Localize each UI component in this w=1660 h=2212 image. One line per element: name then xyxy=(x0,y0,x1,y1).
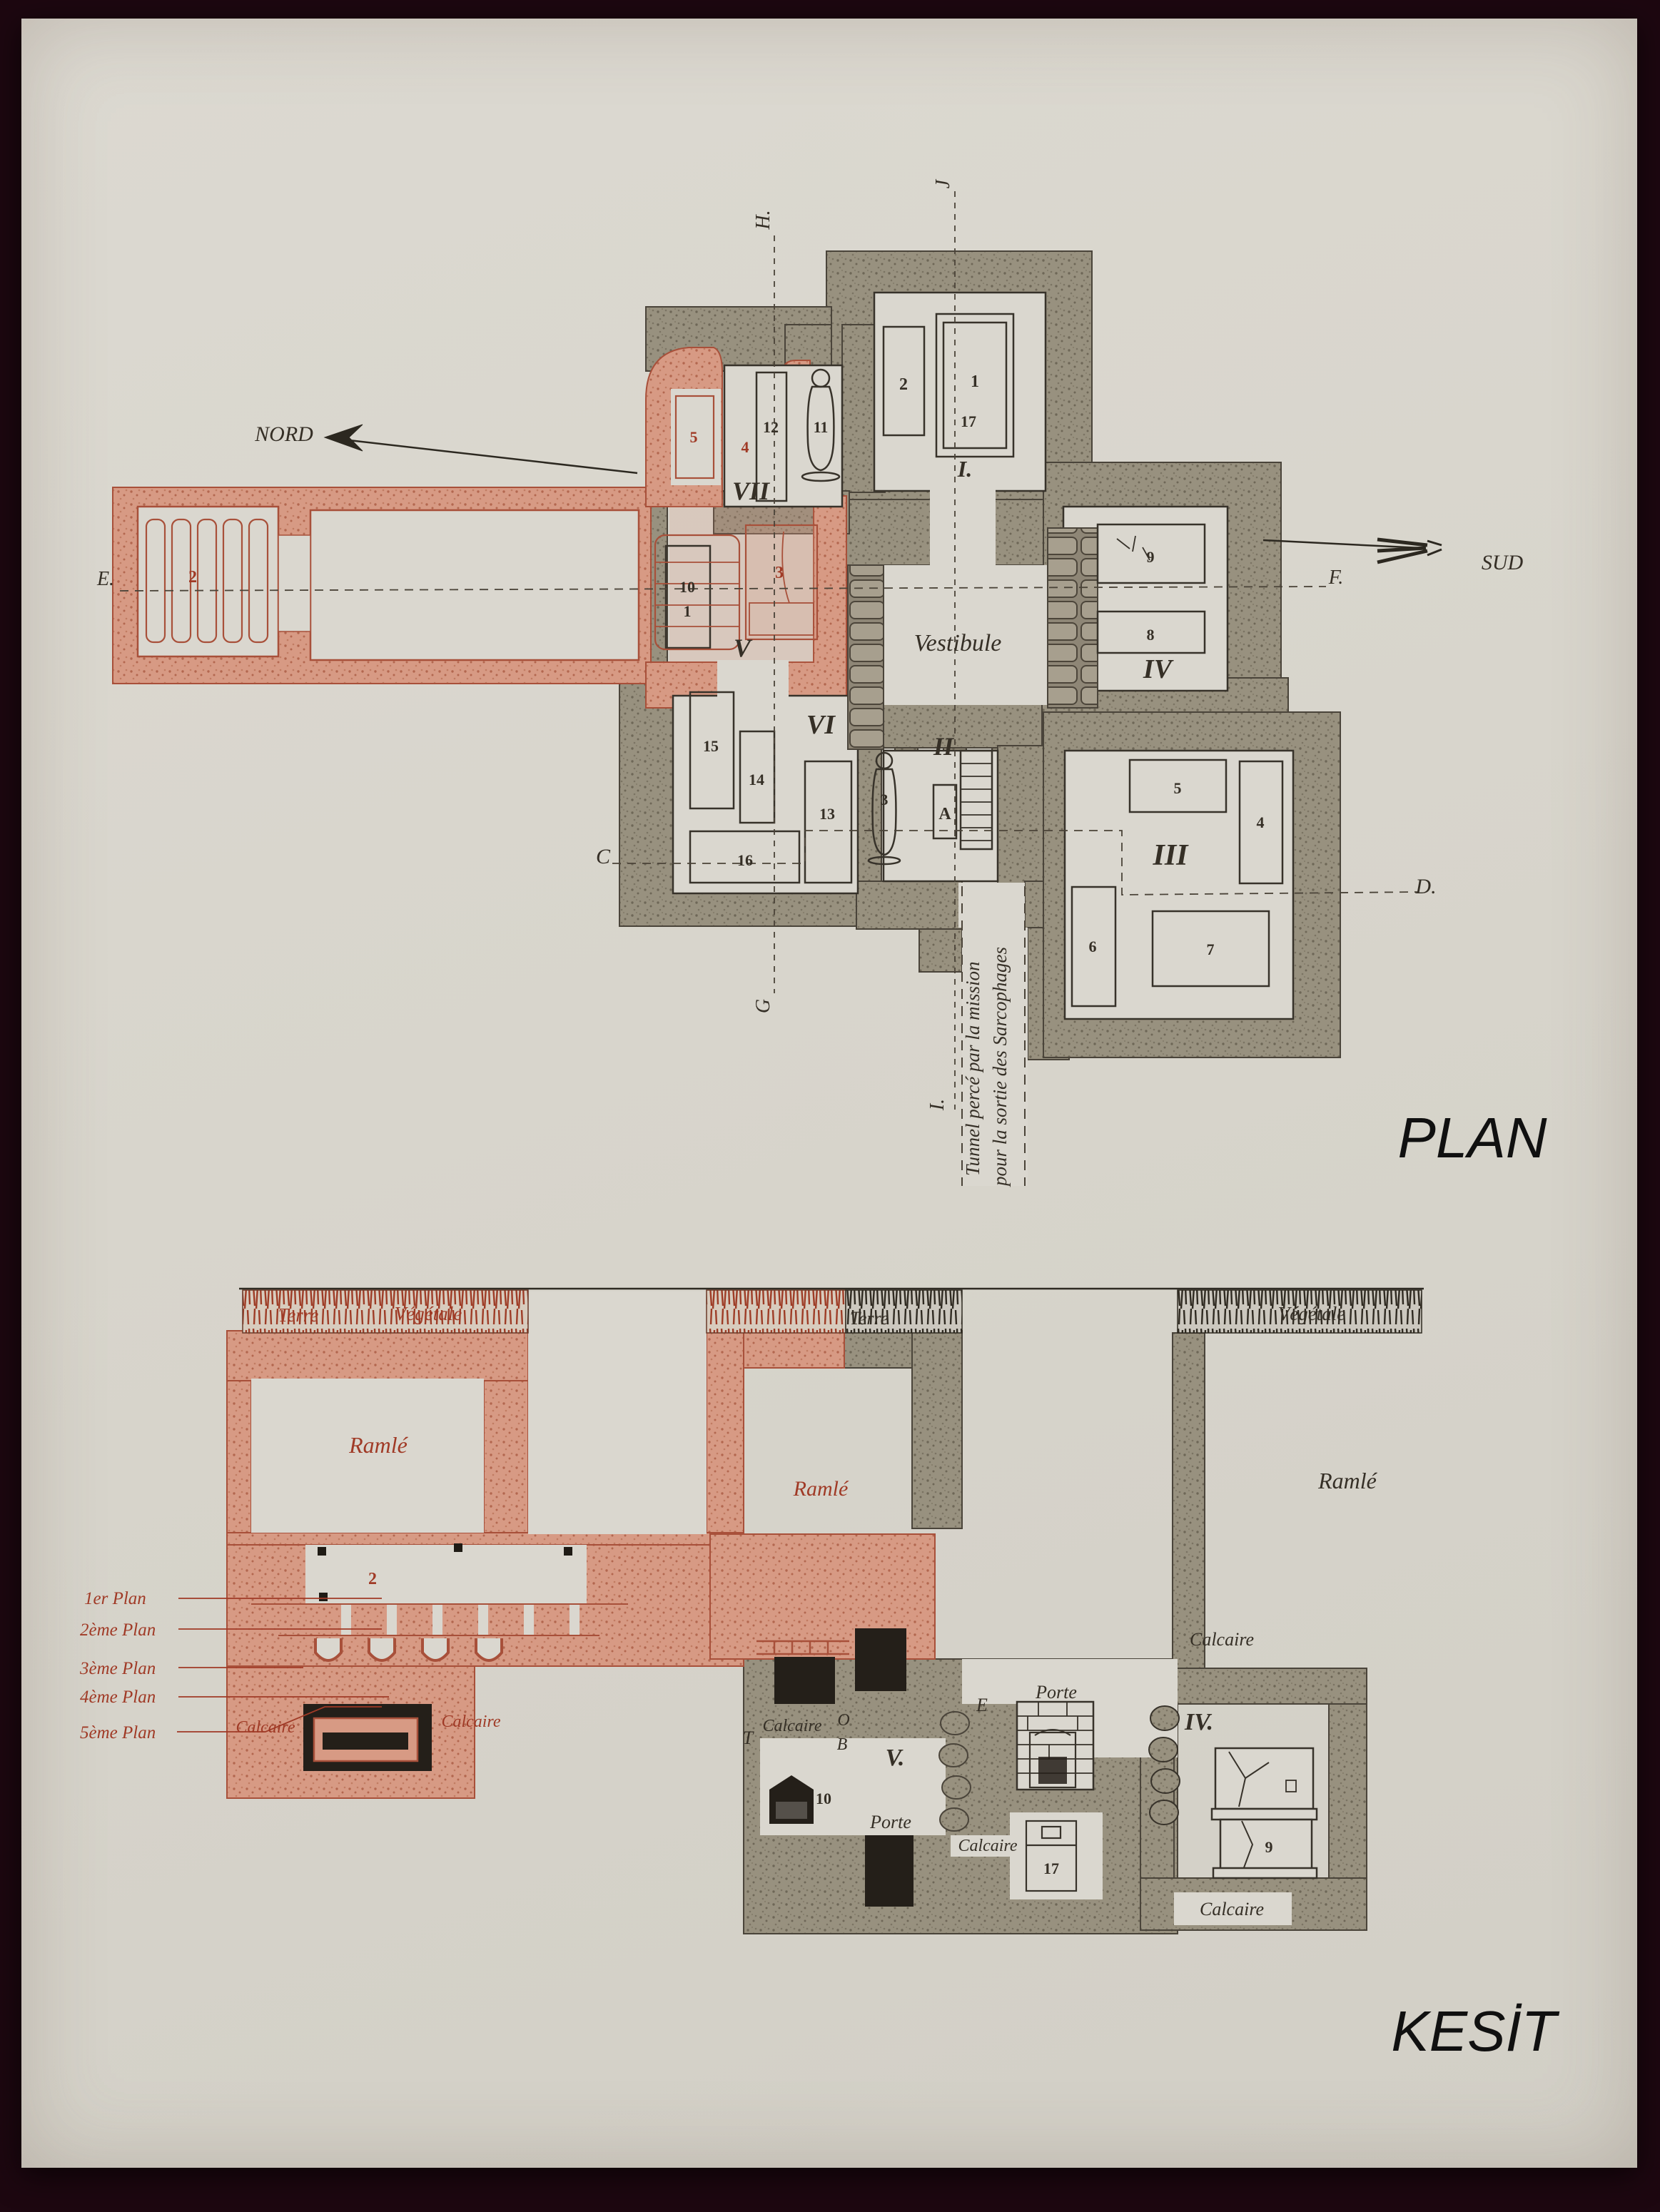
calcaire-bottom-label: Calcaire xyxy=(1200,1899,1264,1919)
calcaire-right-label: Calcaire xyxy=(1190,1629,1254,1650)
letter-B-label: B xyxy=(837,1735,848,1754)
num-iii-4: 4 xyxy=(1257,813,1265,831)
num-cI-2: 2 xyxy=(899,375,908,394)
num-vi-13: 13 xyxy=(819,805,835,823)
terre-black-label: Terre xyxy=(850,1308,889,1329)
num-vi-15: 15 xyxy=(703,737,719,755)
tomb-plan-and-section-drawing: NORD SUD Vestibule E. F. C D. H. G J I. … xyxy=(0,0,1660,2212)
blocked-porte xyxy=(1017,1702,1093,1790)
num-section-10: 10 xyxy=(816,1790,831,1807)
num-section-17: 17 xyxy=(1043,1860,1059,1877)
num-iii-5: 5 xyxy=(1174,779,1182,797)
num-vi-16: 16 xyxy=(737,851,753,869)
num-v-1: 1 xyxy=(684,602,692,620)
letter-T-label: T xyxy=(743,1728,754,1748)
num-iii-7: 7 xyxy=(1207,940,1215,958)
south-arrow-fletching xyxy=(1263,539,1442,562)
room-IV-label: IV xyxy=(1143,654,1174,684)
letter-D: D. xyxy=(1414,875,1436,898)
plan-drawing: NORD SUD Vestibule E. F. C D. H. G J I. … xyxy=(96,178,1524,1187)
letter-G: G xyxy=(752,999,774,1013)
num-vi-14: 14 xyxy=(749,771,764,788)
ramle-right-label: Ramlé xyxy=(1317,1468,1378,1493)
level-2-label: 2ème Plan xyxy=(80,1620,156,1640)
num-v-3: 3 xyxy=(775,564,784,582)
room-VII-label: VII xyxy=(732,477,771,505)
letter-I-tunnel: I. xyxy=(926,1099,948,1111)
num-v-10: 10 xyxy=(679,578,695,596)
section-drawing: Terre Végétale Ramlé Ramlé Calcaire Calc… xyxy=(79,1289,1424,1934)
num-section-9: 9 xyxy=(1265,1838,1273,1856)
level-4-label: 4ème Plan xyxy=(80,1688,156,1707)
level-1-label: 1er Plan xyxy=(84,1589,146,1608)
north-label: NORD xyxy=(254,422,313,446)
num-iii-6: 6 xyxy=(1089,938,1097,955)
room-I-label: I. xyxy=(957,456,972,482)
letter-E: E. xyxy=(96,568,114,590)
letter-H: H. xyxy=(752,210,774,230)
room-II-label: II xyxy=(933,732,955,761)
letter-F: F. xyxy=(1328,567,1344,589)
tunnel-note-line2: pour la sortie des Sarcophages xyxy=(989,947,1011,1187)
num-iv-9: 9 xyxy=(1147,548,1155,566)
level-5-label: 5ème Plan xyxy=(80,1723,156,1742)
ramle-left-label: Ramlé xyxy=(348,1432,409,1458)
letter-C: C xyxy=(596,845,611,868)
num-ii-3: 3 xyxy=(881,791,889,808)
plan-caption: PLAN xyxy=(1398,1106,1547,1170)
num-cI-1: 1 xyxy=(971,372,979,391)
calcaire-mid-1-label: Calcaire xyxy=(762,1717,821,1735)
porte-blocked-label: Porte xyxy=(1035,1682,1077,1703)
north-arrow xyxy=(325,425,637,473)
room-VI-label: VI xyxy=(806,710,836,740)
section-room-IV-label: IV. xyxy=(1184,1709,1213,1735)
terre-red-label: Terre xyxy=(278,1304,319,1326)
num-section-2: 2 xyxy=(368,1570,377,1588)
calcaire-red-2-label: Calcaire xyxy=(441,1713,500,1731)
room-V-label: V xyxy=(734,634,753,662)
letter-O-label: O xyxy=(837,1711,849,1730)
ramle-mid-label: Ramlé xyxy=(793,1477,849,1501)
tunnel-note-line1: Tunnel percé par la mission xyxy=(962,962,983,1177)
calcaire-red-1-label: Calcaire xyxy=(236,1718,295,1737)
level-3-label: 3ème Plan xyxy=(79,1659,156,1678)
vegetale-black-label: Végétale xyxy=(1278,1303,1345,1324)
num-cI-17: 17 xyxy=(961,412,976,430)
letter-E-section-label: E xyxy=(976,1695,988,1715)
room-III-label: III xyxy=(1152,839,1189,872)
num-gallery-2: 2 xyxy=(188,568,197,587)
section-room-V-label: V. xyxy=(886,1745,905,1771)
num-iv-8: 8 xyxy=(1147,626,1155,644)
num-ii-A: A xyxy=(938,805,951,823)
calcaire-mid-2-label: Calcaire xyxy=(958,1837,1017,1855)
left-sarcophagus-niche xyxy=(303,1704,432,1771)
letter-J: J xyxy=(932,178,954,188)
num-vii-4: 4 xyxy=(742,438,749,456)
num-vii-5: 5 xyxy=(690,428,698,446)
vegetale-red-label: Végétale xyxy=(395,1303,462,1324)
south-label: SUD xyxy=(1482,551,1524,574)
porte-v-label: Porte xyxy=(869,1812,911,1832)
scanned-page: NORD SUD Vestibule E. F. C D. H. G J I. … xyxy=(0,0,1660,2212)
section-caption: KESİT xyxy=(1391,1999,1559,2063)
num-vii-12: 12 xyxy=(763,418,779,436)
vestibule-label: Vestibule xyxy=(914,630,1002,656)
num-vii-11: 11 xyxy=(814,418,829,436)
